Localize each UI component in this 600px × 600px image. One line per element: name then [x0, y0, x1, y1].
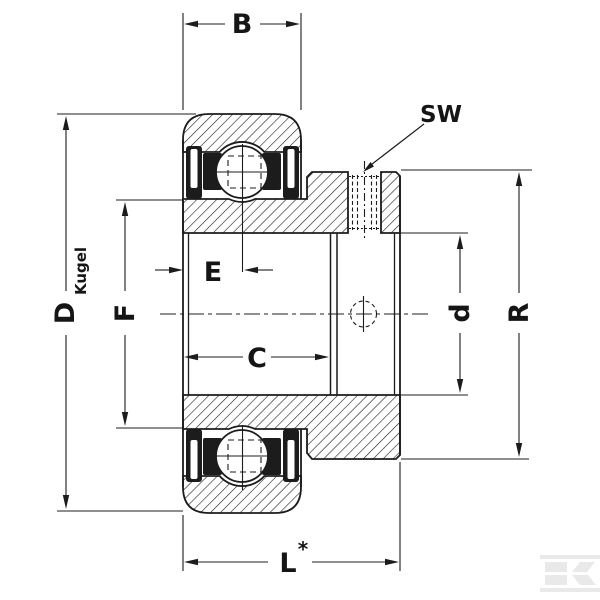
arrowhead: [184, 559, 198, 565]
seal-top-left-lip: [191, 149, 198, 188]
logo-stem-upper: [545, 562, 567, 572]
arrowhead: [516, 172, 522, 186]
seal-top-right-foot: [285, 188, 297, 198]
seal-top-left-foot: [188, 188, 200, 198]
dim-c-label: C: [247, 343, 267, 374]
callout-sw-label: SW: [420, 102, 462, 128]
technical-drawing-canvas: B D Kugel F E: [0, 0, 600, 600]
seal-bottom-left-foot: [188, 430, 200, 440]
set-screw-hole: [349, 161, 380, 238]
dim-r-label: R: [504, 302, 535, 323]
brand-k-logo: [540, 555, 600, 592]
dim-d-bore-label: d: [445, 303, 476, 322]
dim-b-label: B: [232, 9, 253, 40]
arrowhead: [315, 354, 329, 360]
logo-bar-top: [540, 555, 600, 559]
dim-f-label: F: [110, 304, 141, 322]
arrowhead: [63, 116, 69, 130]
dim-d-outer-label: D: [50, 302, 81, 324]
dim-l-star: *: [298, 537, 309, 561]
seal-top-right-lip: [288, 149, 295, 188]
arrowhead: [244, 267, 258, 273]
arrowhead: [169, 267, 183, 273]
arrowhead: [457, 379, 463, 393]
arrowhead: [457, 235, 463, 249]
bearing-cross-section-drawing: B D Kugel F E: [0, 0, 600, 600]
logo-stem-lower: [545, 575, 567, 585]
dim-e-label: E: [204, 257, 222, 288]
logo-arm-upper: [572, 562, 595, 572]
arrowhead: [63, 495, 69, 509]
seal-bottom-right-foot: [285, 430, 297, 440]
seal-bottom-right-lip: [288, 440, 295, 479]
arrowhead: [184, 354, 198, 360]
arrowhead: [516, 443, 522, 457]
arrowhead: [122, 202, 128, 216]
kugel-label: Kugel: [72, 247, 90, 295]
arrowhead: [385, 559, 399, 565]
bearing-section: [160, 114, 430, 513]
collar-top-right: [381, 172, 400, 233]
logo-arm-lower: [572, 575, 596, 585]
dim-l-label: L: [279, 548, 296, 579]
callout-sw: [363, 124, 424, 172]
leader-line: [367, 124, 424, 168]
seal-bottom-left-lip: [191, 440, 198, 479]
logo-bar-bottom: [540, 588, 600, 592]
arrowhead: [184, 21, 198, 27]
screw-hole-projection: [351, 296, 377, 332]
arrowhead: [286, 21, 300, 27]
arrowhead: [122, 412, 128, 426]
